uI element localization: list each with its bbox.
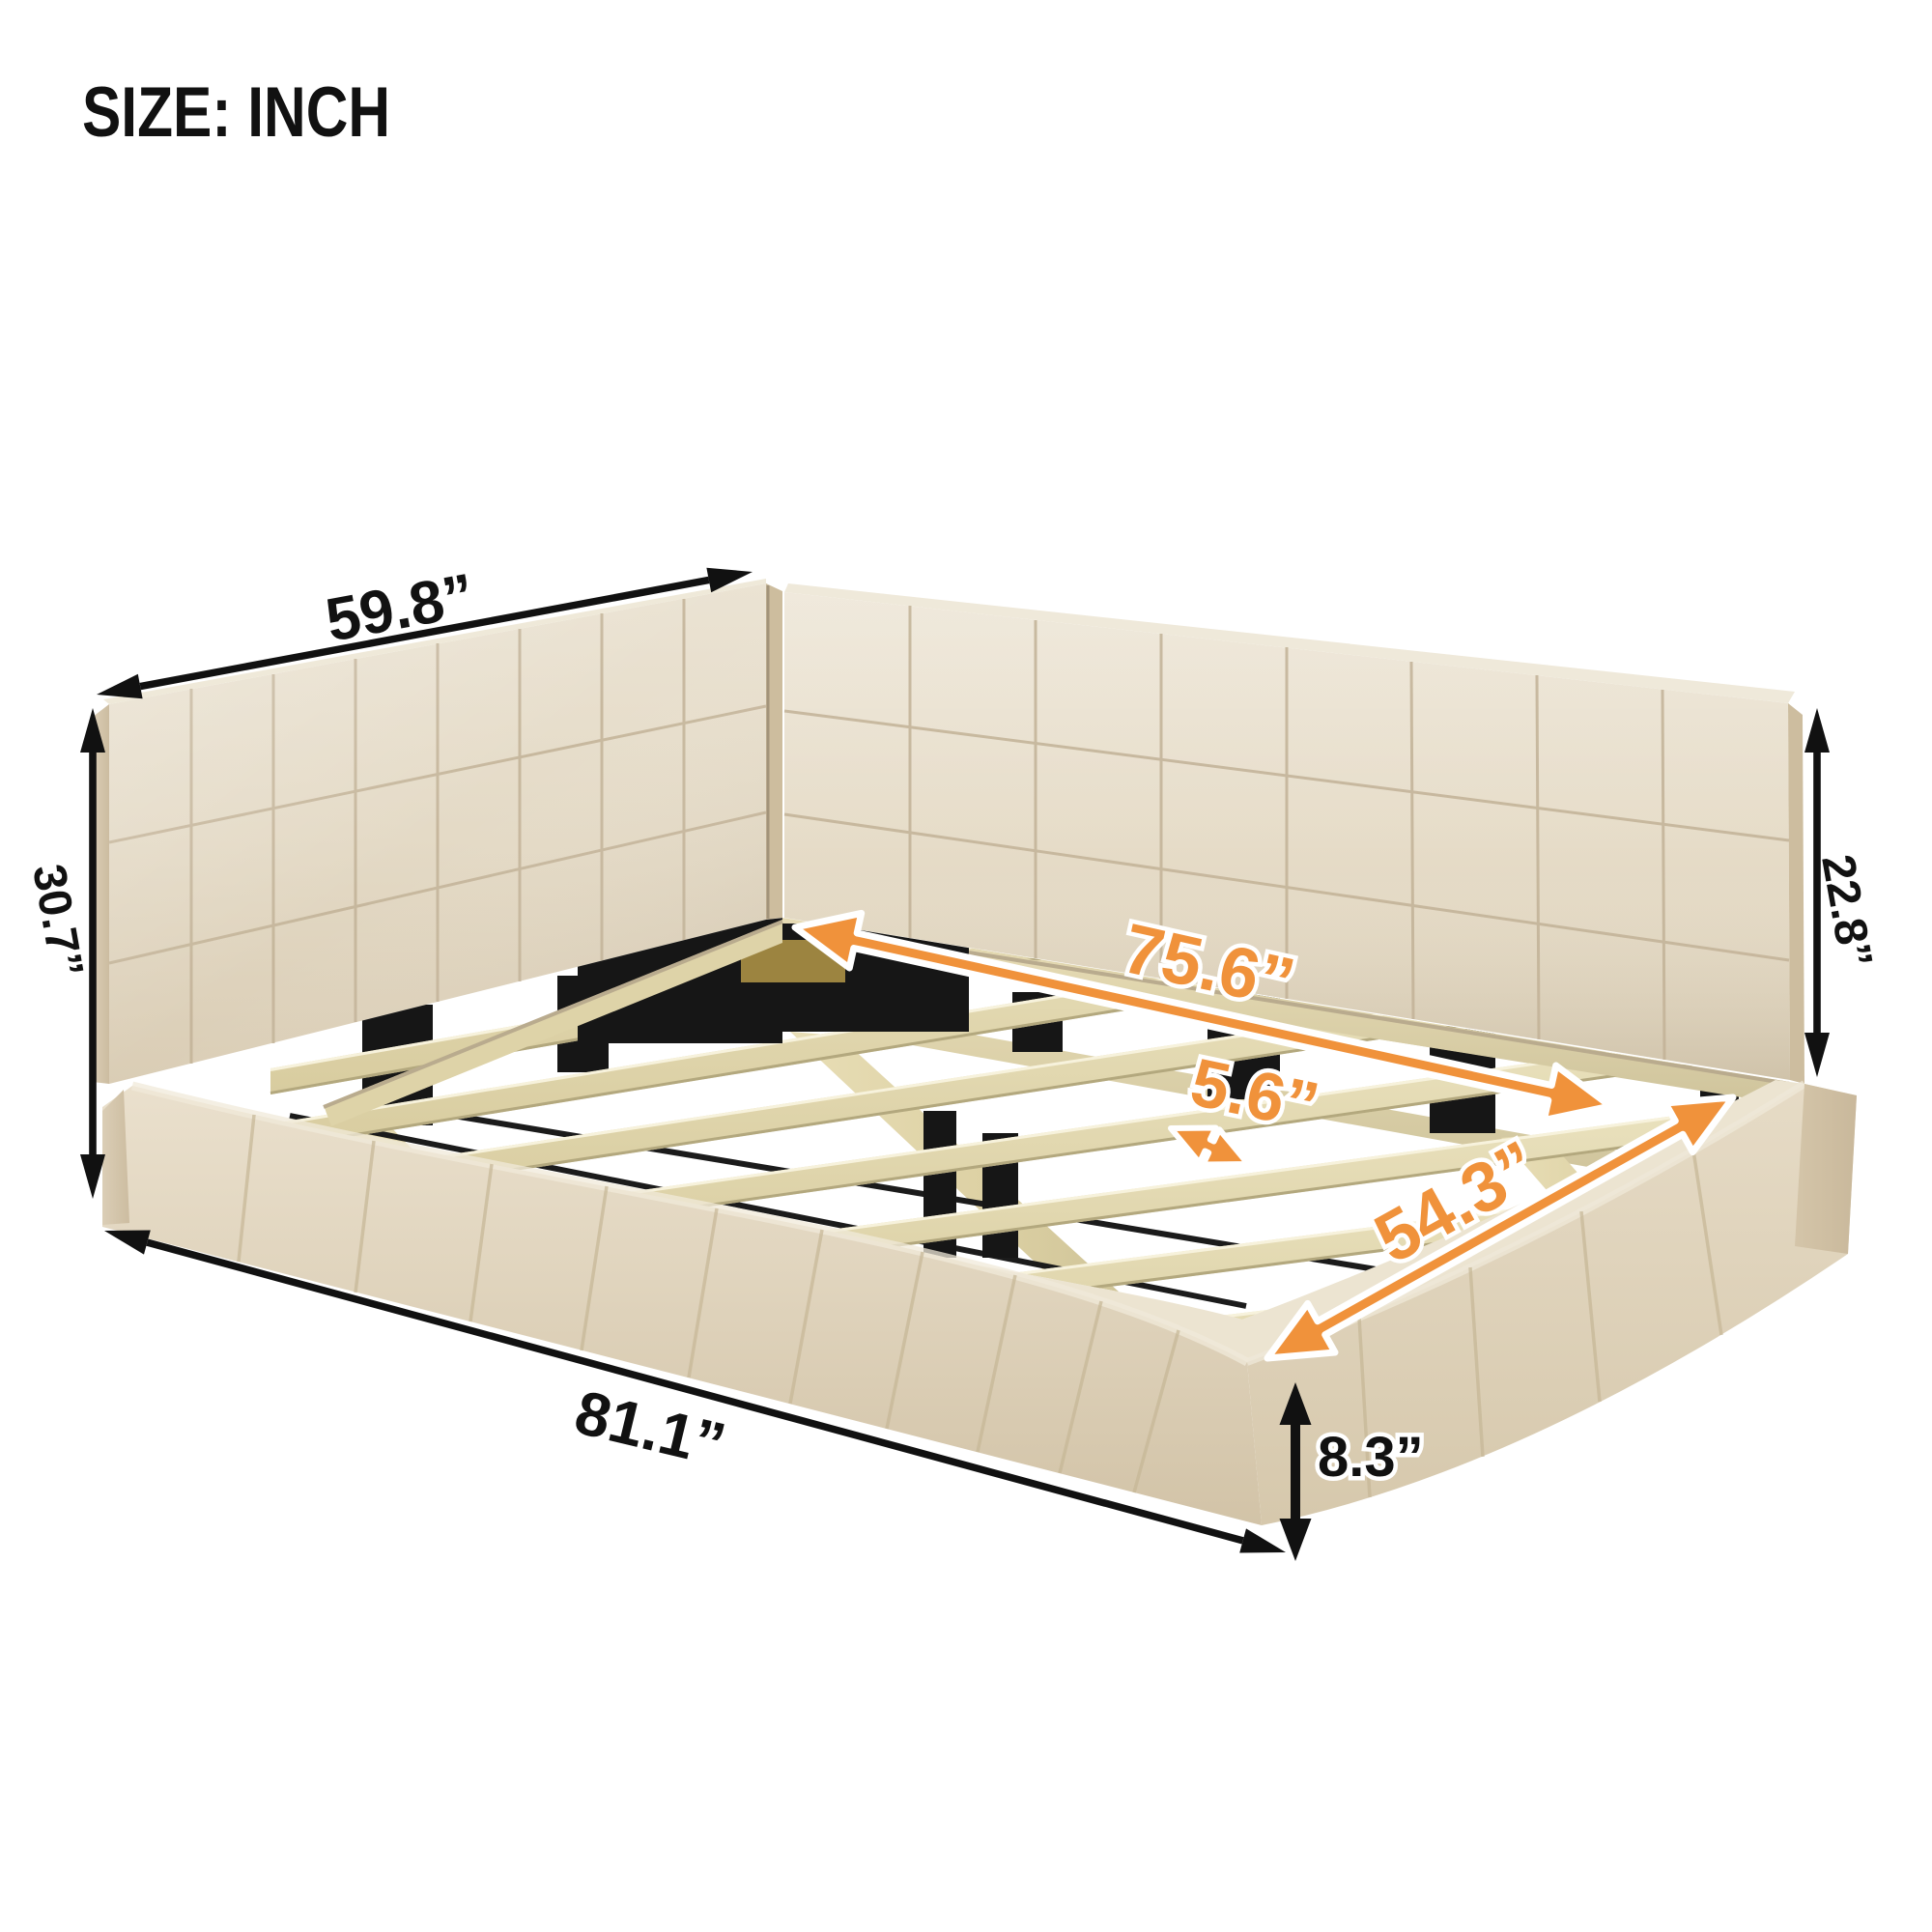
svg-text:8.3”: 8.3”: [1318, 1426, 1424, 1489]
svg-text:SIZE: INCH: SIZE: INCH: [82, 73, 390, 152]
